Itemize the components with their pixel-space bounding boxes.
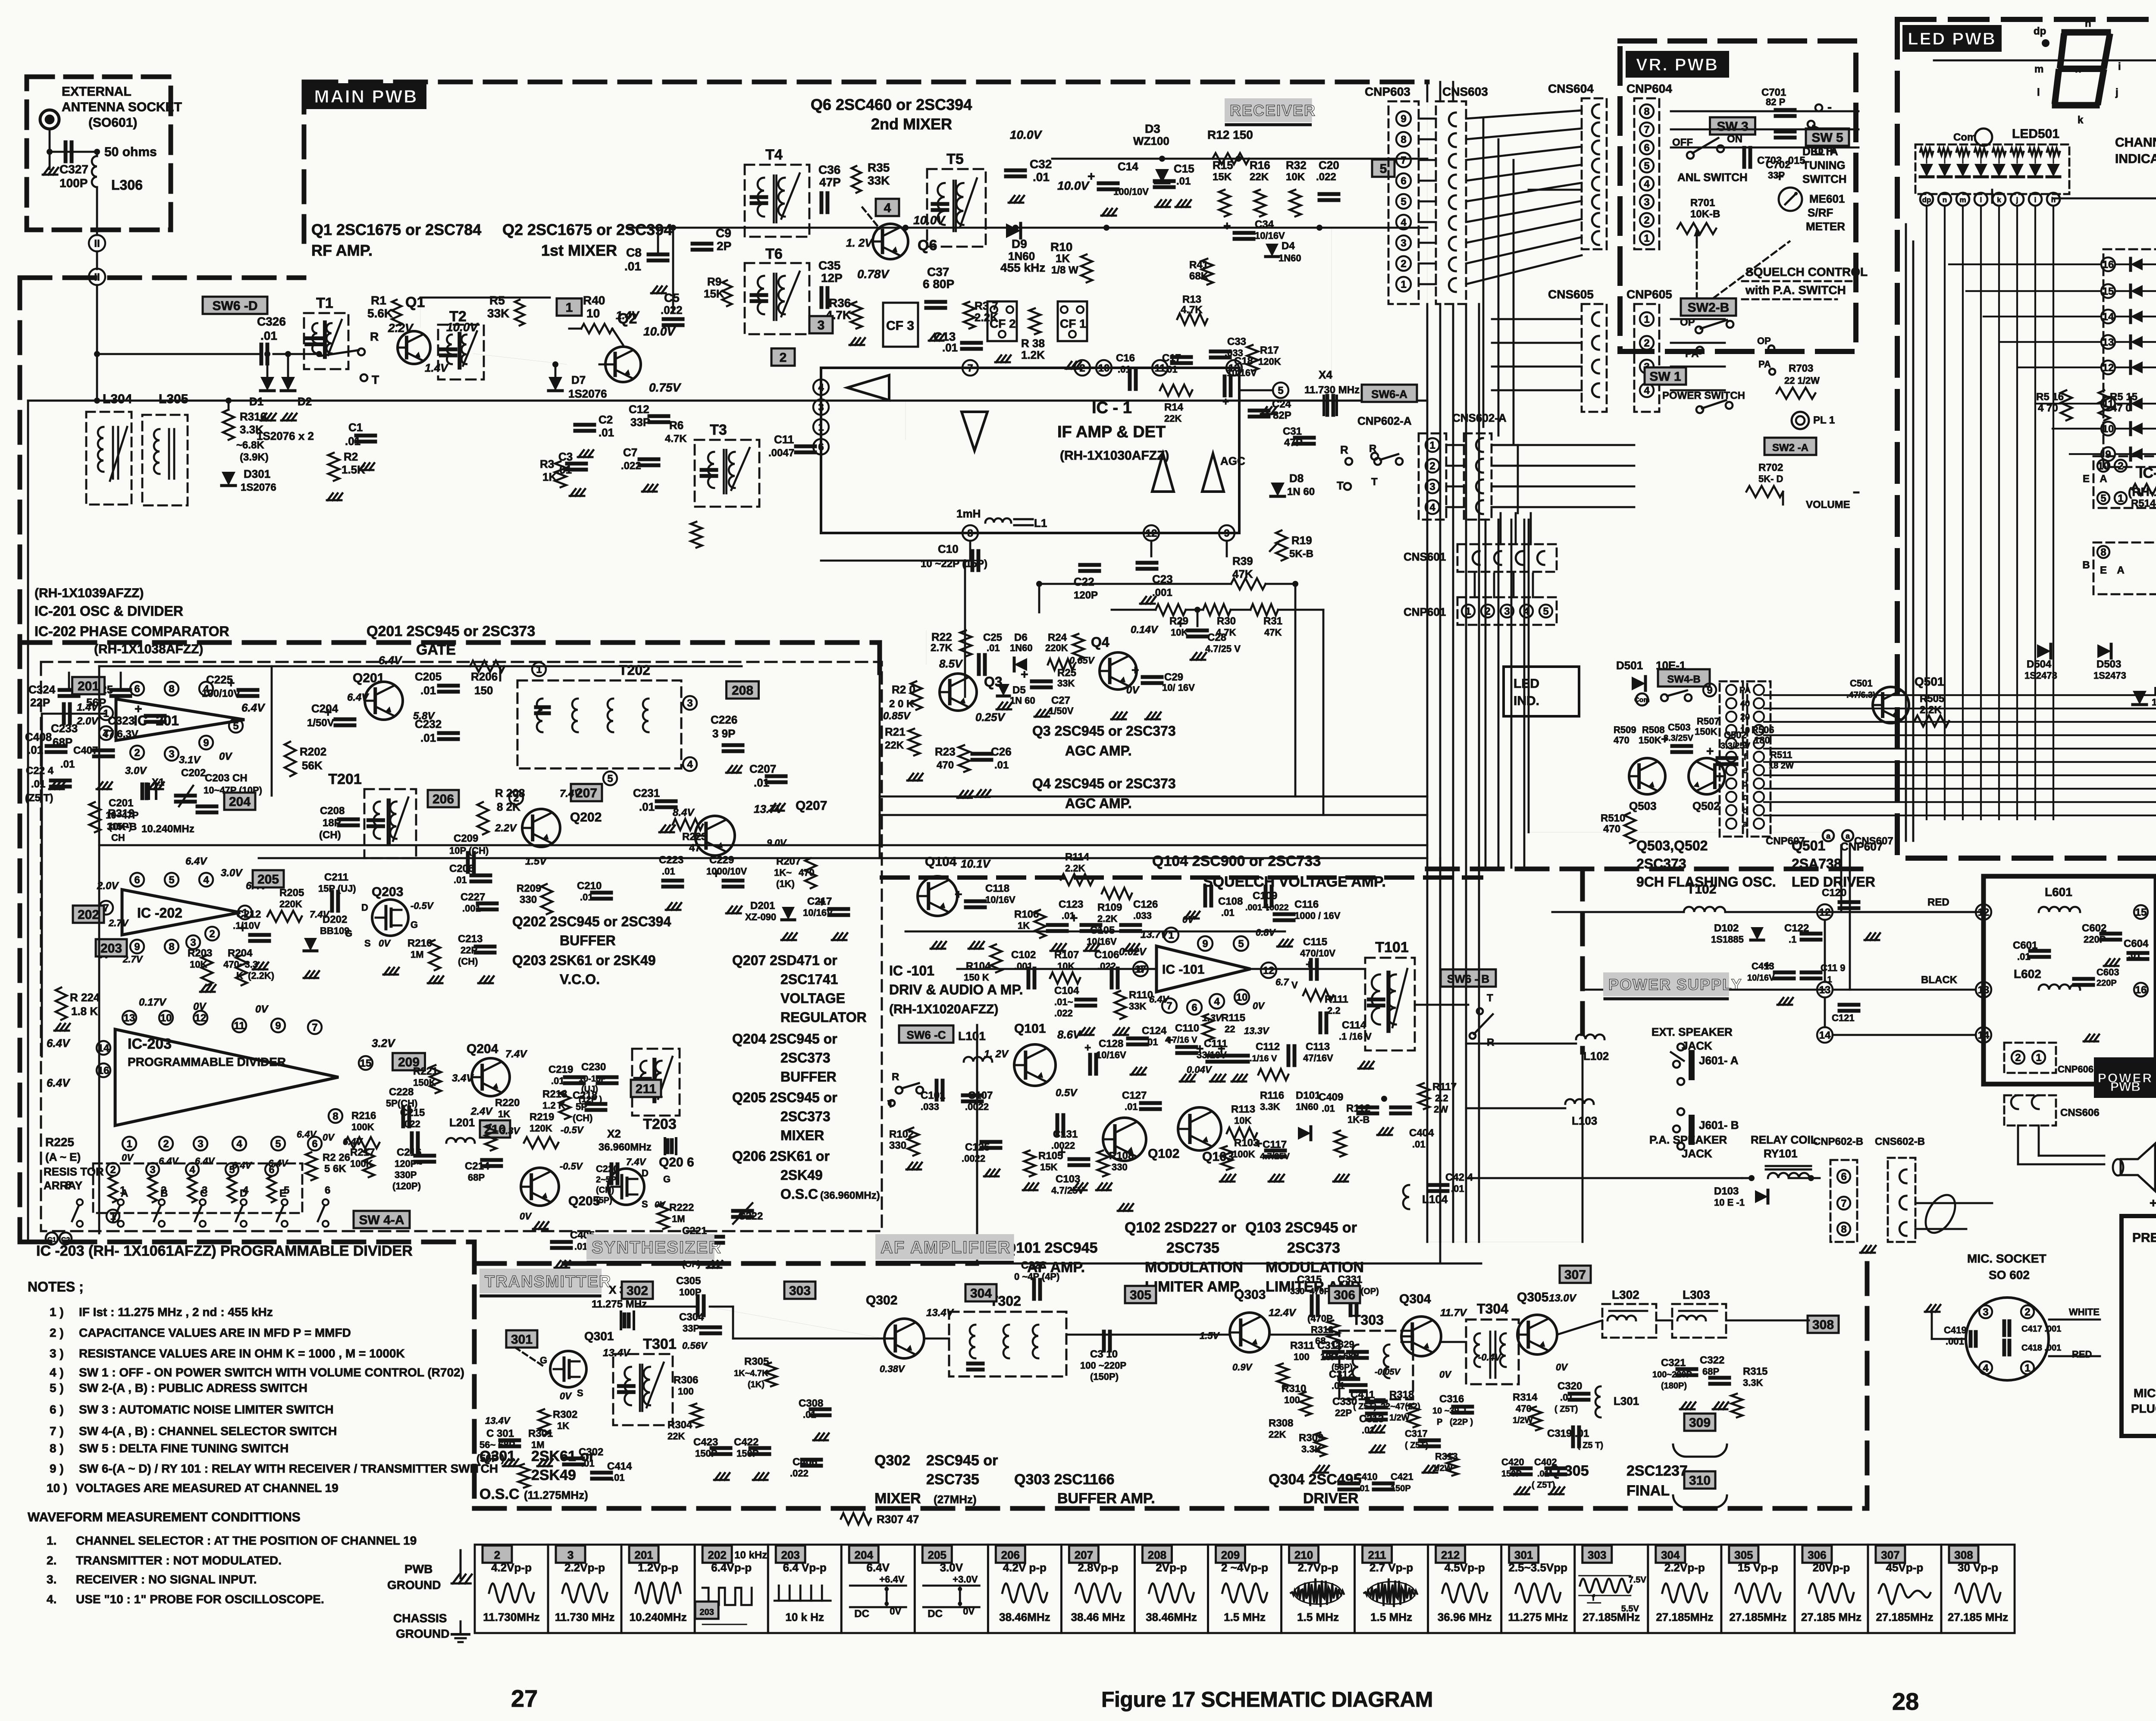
- svg-text:EXT. SPEAKER: EXT. SPEAKER: [1651, 1025, 1733, 1038]
- svg-text:1: 1: [2118, 493, 2123, 505]
- svg-text:2SC735: 2SC735: [926, 1471, 979, 1488]
- svg-text:RECEIVER : NO SIGNAL INPUT.: RECEIVER : NO SIGNAL INPUT.: [76, 1573, 257, 1586]
- svg-text:R510: R510: [1601, 812, 1625, 824]
- svg-text:+: +: [1661, 732, 1669, 746]
- svg-text:Q204 2SC945 or: Q204 2SC945 or: [732, 1031, 837, 1047]
- svg-text:1.5 MHz: 1.5 MHz: [1297, 1611, 1339, 1624]
- svg-text:Q6: Q6: [918, 237, 937, 254]
- svg-text:7: 7: [1644, 124, 1649, 136]
- svg-text:+: +: [1131, 663, 1139, 677]
- svg-text:1.4V: 1.4V: [77, 702, 99, 713]
- svg-text:2SC373: 2SC373: [780, 1109, 830, 1124]
- svg-text:6: 6: [134, 683, 140, 695]
- svg-text:C115: C115: [1303, 936, 1327, 948]
- svg-text:2.0V: 2.0V: [76, 715, 99, 727]
- svg-text:R219: R219: [530, 1111, 554, 1123]
- svg-text:C103: C103: [1056, 1173, 1080, 1185]
- svg-text:MIC. SOCKET: MIC. SOCKET: [1967, 1252, 2046, 1265]
- svg-text:7.4V: 7.4V: [505, 1048, 527, 1060]
- svg-text:L103: L103: [1572, 1114, 1597, 1127]
- svg-text:+: +: [818, 895, 826, 909]
- svg-text:V.C.O.: V.C.O.: [560, 972, 600, 987]
- svg-text:C12: C12: [629, 403, 649, 416]
- svg-text:9: 9: [203, 737, 209, 749]
- svg-text:CF 1: CF 1: [1060, 317, 1086, 330]
- svg-text:27.185 MHz: 27.185 MHz: [1801, 1611, 1861, 1624]
- svg-text:(22P ): (22P ): [1450, 1417, 1473, 1427]
- svg-text:120K: 120K: [530, 1123, 552, 1134]
- svg-text:.033: .033: [1133, 910, 1152, 921]
- svg-text:P.A. SPEAKER: P.A. SPEAKER: [1649, 1133, 1727, 1146]
- svg-text:P: P: [1437, 1417, 1442, 1427]
- svg-text:Q1: Q1: [405, 294, 425, 310]
- svg-text:0.5V: 0.5V: [1056, 1087, 1078, 1099]
- svg-text:10: 10: [2103, 423, 2114, 435]
- svg-text:d: d: [1742, 779, 1748, 789]
- svg-text:5K- D: 5K- D: [1758, 473, 1783, 484]
- svg-text:a: a: [1742, 819, 1748, 829]
- svg-text:(2.2K): (2.2K): [248, 970, 274, 981]
- svg-text:Q20 6: Q20 6: [659, 1155, 694, 1169]
- svg-text:0.85V: 0.85V: [883, 710, 911, 722]
- svg-text:1S1885: 1S1885: [1711, 934, 1744, 945]
- svg-text:38.46MHz: 38.46MHz: [1146, 1611, 1197, 1624]
- svg-text:CNP605: CNP605: [1626, 288, 1672, 301]
- svg-text:C11: C11: [774, 433, 794, 446]
- svg-text:Q201 2SC945 or 2SC373: Q201 2SC945 or 2SC373: [367, 623, 535, 639]
- svg-text:DRIVER: DRIVER: [1303, 1490, 1358, 1507]
- svg-text:IC-501: IC-501: [2139, 465, 2156, 481]
- svg-text:2: 2: [1401, 258, 1406, 270]
- svg-text:307: 307: [1564, 1268, 1586, 1282]
- svg-text:CNS602-B: CNS602-B: [1875, 1136, 1925, 1147]
- svg-text:Q202: Q202: [570, 810, 602, 824]
- svg-text:C110: C110: [1175, 1022, 1199, 1034]
- svg-text:(Z5 T): (Z5 T): [25, 792, 53, 804]
- svg-text:R202: R202: [300, 745, 326, 758]
- svg-text:(15P): (15P): [109, 821, 132, 832]
- svg-text:3.0V: 3.0V: [125, 765, 147, 777]
- svg-text:3.3K: 3.3K: [1260, 1101, 1280, 1112]
- svg-text:C305: C305: [676, 1275, 701, 1287]
- svg-text:.01: .01: [1221, 907, 1235, 918]
- svg-text:~6.8K: ~6.8K: [236, 439, 264, 451]
- svg-text:CNS605: CNS605: [1548, 288, 1594, 301]
- svg-text:C35: C35: [818, 259, 840, 272]
- svg-text:TRANSMITTER: TRANSMITTER: [485, 1273, 611, 1291]
- svg-text:R301: R301: [528, 1428, 553, 1439]
- svg-text:C14: C14: [1118, 160, 1138, 173]
- svg-text:D2: D2: [298, 395, 312, 408]
- svg-text:2.7V: 2.7V: [108, 918, 129, 928]
- svg-text:47K: 47K: [1232, 567, 1253, 580]
- svg-text:309: 309: [1689, 1416, 1711, 1430]
- svg-text:(36.960MHz): (36.960MHz): [820, 1190, 880, 1201]
- svg-text:15: 15: [360, 1058, 372, 1069]
- svg-text:SW2-B: SW2-B: [1688, 301, 1730, 315]
- svg-text:R209: R209: [517, 883, 541, 894]
- svg-text:IF AMP & DET: IF AMP & DET: [1057, 423, 1166, 441]
- svg-text:202: 202: [708, 1549, 726, 1561]
- svg-text:1S2076: 1S2076: [568, 387, 607, 400]
- svg-text:10 ): 10 ): [47, 1481, 67, 1495]
- svg-text:T6: T6: [765, 246, 783, 262]
- svg-text:6: 6: [818, 442, 824, 453]
- svg-text:SW6 -D: SW6 -D: [213, 299, 258, 313]
- svg-text:Q102: Q102: [1148, 1147, 1179, 1161]
- svg-text:R106: R106: [1014, 909, 1039, 920]
- svg-text:(5P): (5P): [596, 1196, 612, 1205]
- svg-text:305: 305: [1130, 1288, 1151, 1302]
- svg-text:+: +: [1070, 911, 1078, 925]
- svg-text:C327: C327: [60, 163, 88, 176]
- svg-text:O.S.C: O.S.C: [780, 1186, 818, 1202]
- svg-text:C211: C211: [324, 871, 348, 883]
- svg-text:5.6K: 5.6K: [367, 307, 393, 320]
- svg-text:330: 330: [1112, 1162, 1128, 1172]
- svg-text:4.5Vp-p: 4.5Vp-p: [1445, 1561, 1485, 1574]
- svg-text:C329: C329: [1332, 1339, 1354, 1350]
- svg-text:2P: 2P: [717, 239, 731, 253]
- svg-text:(56P): (56P): [1332, 1363, 1353, 1372]
- svg-text:7.4V: 7.4V: [560, 788, 582, 799]
- svg-text:1M: 1M: [672, 1213, 685, 1224]
- svg-text:Q104: Q104: [925, 855, 957, 869]
- svg-text:(180P): (180P): [1661, 1381, 1687, 1391]
- svg-text:4: 4: [243, 1185, 249, 1196]
- svg-text:C227: C227: [461, 891, 485, 903]
- svg-text:J601- A: J601- A: [1699, 1054, 1739, 1067]
- svg-text:T1: T1: [316, 295, 333, 311]
- svg-text:IC-203: IC-203: [128, 1036, 172, 1052]
- svg-text:T203: T203: [643, 1116, 677, 1132]
- svg-text:2: 2: [1644, 338, 1649, 349]
- svg-text:MODULATION: MODULATION: [1145, 1259, 1243, 1276]
- svg-text:30 Vp-p: 30 Vp-p: [1958, 1561, 1998, 1574]
- svg-text:12.4V: 12.4V: [1269, 1307, 1297, 1319]
- svg-text:L104: L104: [1422, 1193, 1448, 1206]
- svg-text:SW 5: SW 5: [1811, 131, 1843, 145]
- svg-text:IF Ist : 11.275 MHz , 2 nd :: IF Ist : 11.275 MHz , 2 nd : 455 kHz: [79, 1305, 273, 1319]
- svg-text:R116: R116: [1260, 1090, 1284, 1101]
- svg-text:150K: 150K: [1639, 735, 1661, 746]
- svg-text:with P.A. SWITCH: with P.A. SWITCH: [1745, 283, 1846, 297]
- svg-text:100/10V: 100/10V: [1113, 186, 1149, 197]
- svg-text:C127: C127: [1122, 1090, 1147, 1101]
- svg-text:.01: .01: [31, 778, 45, 790]
- svg-text:C233: C233: [51, 722, 78, 735]
- svg-text:1K: 1K: [1056, 252, 1070, 265]
- svg-text:D9: D9: [1012, 237, 1027, 251]
- svg-text:1. 2V: 1. 2V: [846, 236, 873, 249]
- svg-text:+: +: [712, 867, 720, 881]
- svg-text:R: R: [370, 330, 379, 343]
- svg-text:JACK: JACK: [1682, 1147, 1712, 1160]
- svg-text:L304: L304: [103, 392, 132, 406]
- svg-text:13: 13: [1228, 363, 1240, 374]
- svg-text:4: 4: [1429, 502, 1435, 514]
- svg-text:VOLTAGES ARE MEASURED AT CHAN: VOLTAGES ARE MEASURED AT CHANNEL 19: [76, 1481, 338, 1495]
- svg-text:R225: R225: [45, 1135, 74, 1149]
- svg-text:C326: C326: [257, 315, 286, 328]
- svg-text:470: 470: [1603, 823, 1620, 835]
- svg-text:0V: 0V: [379, 938, 391, 949]
- svg-text:ON: ON: [1727, 133, 1742, 145]
- svg-text:D4: D4: [1282, 240, 1295, 252]
- svg-text:R 38: R 38: [1021, 337, 1045, 350]
- svg-text:SW 4-A: SW 4-A: [359, 1213, 404, 1227]
- svg-text:1.5V: 1.5V: [1200, 1330, 1220, 1341]
- svg-text:1S2473: 1S2473: [2024, 670, 2057, 681]
- svg-text:33K: 33K: [1129, 1001, 1146, 1012]
- svg-text:k: k: [1997, 196, 2001, 204]
- svg-text:SWITCH: SWITCH: [1802, 172, 1847, 185]
- svg-text:10 k Hz: 10 k Hz: [785, 1611, 824, 1624]
- svg-text:dp: dp: [1922, 196, 1931, 204]
- svg-text:R23: R23: [935, 745, 956, 758]
- svg-text:D1: D1: [249, 395, 263, 408]
- svg-text:13.7V: 13.7V: [754, 803, 784, 815]
- svg-text:2.7Vp-p: 2.7Vp-p: [1298, 1561, 1338, 1574]
- svg-text:7.5V: 7.5V: [1629, 1575, 1647, 1585]
- svg-text:G: G: [663, 1174, 671, 1185]
- svg-text:3.4V: 3.4V: [452, 1072, 474, 1084]
- svg-text:SW 3: SW 3: [1717, 119, 1748, 134]
- svg-text:5: 5: [1401, 196, 1406, 208]
- svg-text:20: 20: [1740, 712, 1750, 722]
- svg-text:+: +: [1166, 1033, 1174, 1047]
- svg-text:1/50V: 1/50V: [1049, 705, 1074, 716]
- svg-text:C501: C501: [1850, 678, 1873, 689]
- svg-text:(12P ): (12P ): [579, 1095, 602, 1104]
- svg-text:+: +: [1776, 169, 1784, 184]
- svg-text:56K: 56K: [302, 759, 323, 772]
- svg-text:0.56V: 0.56V: [682, 1340, 708, 1351]
- svg-text:Q203: Q203: [372, 885, 403, 899]
- svg-text:10 kHz: 10 kHz: [734, 1549, 767, 1561]
- svg-text:C220: C220: [596, 1163, 619, 1174]
- svg-text:2SC1237: 2SC1237: [1626, 1463, 1688, 1479]
- svg-text:0V: 0V: [1439, 1369, 1452, 1380]
- svg-text:R511: R511: [1770, 749, 1792, 760]
- svg-text:22K: 22K: [1269, 1429, 1286, 1440]
- svg-text:R: R: [892, 1071, 899, 1083]
- svg-text:C34: C34: [1255, 219, 1274, 230]
- svg-text:6: 6: [269, 1164, 274, 1176]
- svg-text:T5: T5: [946, 151, 964, 167]
- svg-text:.01: .01: [1412, 1139, 1426, 1150]
- svg-text:(1K): (1K): [776, 878, 795, 889]
- svg-text:.01: .01: [599, 426, 614, 439]
- svg-text:2.7K: 2.7K: [931, 642, 953, 654]
- svg-text:6.4V: 6.4V: [379, 654, 403, 667]
- svg-text:SW 2-(A , B) : PUBLIC ADRESS: SW 2-(A , B) : PUBLIC ADRESS SWITCH: [79, 1381, 307, 1395]
- svg-text:R115: R115: [1221, 1012, 1245, 1024]
- svg-text:11.730 MHz: 11.730 MHz: [555, 1611, 615, 1624]
- svg-text:3: 3: [1401, 238, 1406, 249]
- svg-text:C210: C210: [577, 880, 602, 892]
- svg-text:+: +: [1177, 617, 1185, 631]
- svg-text:INDICATOR: INDICATOR: [2115, 152, 2156, 166]
- svg-text:10/16V: 10/16V: [1087, 936, 1117, 947]
- svg-text:2.2Vp-p: 2.2Vp-p: [564, 1561, 605, 1574]
- svg-text:208: 208: [1148, 1549, 1166, 1561]
- svg-text:CHASSIS: CHASSIS: [393, 1611, 447, 1625]
- svg-text:C31: C31: [1283, 426, 1302, 437]
- svg-text:IC - 1: IC - 1: [1092, 399, 1132, 417]
- svg-text:10.240MHz: 10.240MHz: [630, 1611, 687, 1624]
- svg-text:2SC373: 2SC373: [1287, 1240, 1340, 1256]
- svg-text:(SO601): (SO601): [88, 116, 137, 130]
- svg-text:209: 209: [1221, 1549, 1240, 1561]
- svg-text:m: m: [2034, 63, 2043, 75]
- svg-text:R5: R5: [489, 294, 505, 307]
- svg-text:2.4V: 2.4V: [470, 1106, 493, 1117]
- svg-text:211: 211: [636, 1082, 656, 1096]
- svg-text:0.17V: 0.17V: [139, 997, 167, 1008]
- svg-text:47P: 47P: [819, 176, 841, 189]
- svg-text:1: 1: [120, 1185, 125, 1196]
- svg-text:6: 6: [1644, 142, 1649, 154]
- svg-text:100 ~220P: 100 ~220P: [1080, 1360, 1126, 1371]
- svg-text:C503: C503: [1668, 722, 1691, 733]
- svg-text:33K: 33K: [1057, 678, 1075, 689]
- svg-text:9: 9: [1401, 113, 1406, 125]
- svg-text:E: E: [2100, 564, 2107, 576]
- svg-text:12: 12: [1819, 907, 1831, 918]
- svg-text:C206: C206: [449, 863, 474, 875]
- svg-text:Q304 2SC495: Q304 2SC495: [1269, 1471, 1362, 1488]
- svg-text:-0.5V: -0.5V: [411, 900, 434, 911]
- svg-text:.01: .01: [662, 866, 675, 877]
- svg-text:-0.05V: -0.05V: [1375, 1367, 1401, 1377]
- svg-text:LIMITER AMP.: LIMITER AMP.: [1145, 1279, 1242, 1295]
- svg-text:b: b: [1742, 806, 1748, 815]
- svg-text:1: 1: [2036, 1052, 2041, 1064]
- svg-text:SW2 -A: SW2 -A: [1772, 442, 1808, 454]
- svg-text:Q501: Q501: [1915, 675, 1944, 688]
- svg-text:47K: 47K: [1264, 627, 1282, 638]
- svg-text:R21: R21: [885, 725, 906, 738]
- svg-text:Q207 2SD471 or: Q207 2SD471 or: [732, 953, 837, 968]
- svg-text:1K~: 1K~: [774, 867, 792, 878]
- svg-text:C121: C121: [1832, 1013, 1855, 1023]
- svg-text:C128: C128: [1099, 1038, 1123, 1050]
- svg-text:6 ): 6 ): [50, 1403, 64, 1416]
- svg-text:308: 308: [1812, 1318, 1834, 1332]
- svg-text:C24: C24: [1272, 398, 1291, 410]
- svg-text:MIC.: MIC.: [2134, 1386, 2156, 1400]
- svg-text:0.02V: 0.02V: [1119, 946, 1147, 958]
- svg-text:C201: C201: [109, 797, 133, 809]
- svg-text:1S2076: 1S2076: [241, 482, 276, 493]
- svg-text:8: 8: [1841, 1224, 1846, 1235]
- svg-text:R2: R2: [344, 450, 358, 463]
- svg-text:Q104 2SC900 or 2SC733: Q104 2SC900 or 2SC733: [1152, 853, 1321, 869]
- svg-text:D6: D6: [1014, 632, 1028, 643]
- svg-text:.01: .01: [942, 341, 958, 354]
- svg-text:4: 4: [1401, 217, 1407, 229]
- svg-text:203: 203: [699, 1608, 714, 1617]
- svg-text:L201: L201: [449, 1116, 475, 1129]
- svg-text:6: 6: [1191, 1002, 1197, 1014]
- svg-text:T: T: [1337, 479, 1344, 492]
- svg-text:305: 305: [1734, 1549, 1753, 1561]
- svg-text:6.4V: 6.4V: [347, 692, 369, 703]
- svg-text:D7: D7: [571, 373, 586, 386]
- svg-text:11: 11: [1154, 363, 1165, 374]
- svg-text:2: 2: [780, 351, 787, 365]
- svg-text:R316: R316: [240, 410, 266, 423]
- svg-text:(CH): (CH): [319, 829, 341, 841]
- svg-text:0V: 0V: [193, 1001, 207, 1013]
- svg-text:(UJ): (UJ): [581, 1085, 598, 1094]
- svg-text:11.730MHz: 11.730MHz: [483, 1611, 540, 1624]
- svg-text:15K: 15K: [1040, 1162, 1057, 1172]
- svg-text:1.: 1.: [47, 1534, 56, 1547]
- svg-text:33P: 33P: [683, 1323, 699, 1334]
- svg-text:11: 11: [234, 1020, 244, 1032]
- svg-text:2.5~3.5Vpp: 2.5~3.5Vpp: [1508, 1561, 1567, 1574]
- svg-text:1000 / 16V: 1000 / 16V: [1294, 910, 1341, 921]
- svg-text:C417 .001: C417 .001: [2021, 1324, 2061, 1334]
- svg-text:+: +: [1222, 395, 1229, 408]
- svg-text:0.75V: 0.75V: [649, 381, 681, 394]
- svg-text:L601: L601: [2045, 885, 2072, 899]
- svg-text:i: i: [2118, 61, 2121, 72]
- svg-text:16: 16: [2103, 259, 2114, 271]
- svg-text:2: 2: [134, 747, 140, 759]
- svg-text:C317: C317: [1405, 1428, 1428, 1439]
- svg-text:2.2K: 2.2K: [1097, 913, 1118, 924]
- svg-text:150 K: 150 K: [964, 972, 989, 983]
- svg-text:1K-B: 1K-B: [1347, 1114, 1369, 1125]
- svg-text:C10: C10: [938, 542, 959, 555]
- svg-text:9: 9: [1224, 528, 1229, 539]
- svg-text:2.8Vp-p: 2.8Vp-p: [1078, 1561, 1118, 1574]
- svg-text:C9: C9: [716, 226, 731, 240]
- svg-text:1/8 W: 1/8 W: [1051, 264, 1078, 276]
- svg-text:R14: R14: [1164, 401, 1184, 413]
- svg-text:1N 60: 1N 60: [1287, 486, 1315, 498]
- svg-text:220P: 220P: [2096, 978, 2117, 988]
- svg-text:6.4V: 6.4V: [241, 701, 266, 714]
- svg-text:FINAL: FINAL: [1626, 1483, 1670, 1499]
- svg-text:C315: C315: [1297, 1274, 1322, 1285]
- svg-text:0V: 0V: [520, 1211, 532, 1222]
- svg-text:10.0V: 10.0V: [1057, 179, 1090, 192]
- svg-text:.01: .01: [639, 800, 655, 813]
- svg-text:k: k: [2078, 114, 2084, 126]
- svg-text:SW 1: SW 1: [1649, 370, 1681, 384]
- svg-text:n: n: [2075, 63, 2081, 75]
- svg-text:C205: C205: [415, 670, 442, 683]
- svg-text:470: 470: [1614, 735, 1630, 746]
- svg-text:303: 303: [789, 1284, 811, 1298]
- svg-text:.01: .01: [260, 329, 277, 342]
- svg-text:C113: C113: [1306, 1041, 1330, 1053]
- svg-text:D103: D103: [1714, 1185, 1739, 1197]
- svg-text:SW 3 : AUTOMATIC NOISE LIMIT: SW 3 : AUTOMATIC NOISE LIMITER SWITCH: [79, 1403, 334, 1416]
- svg-text:.01: .01: [1176, 176, 1191, 187]
- svg-text:C212: C212: [236, 909, 261, 920]
- svg-text:2SC945 or: 2SC945 or: [926, 1452, 998, 1469]
- svg-text:REGULATOR: REGULATOR: [780, 1009, 867, 1025]
- svg-text:C207: C207: [749, 762, 776, 775]
- svg-text:CNP602-B: CNP602-B: [1813, 1136, 1863, 1147]
- svg-text:6.4V: 6.4V: [297, 1129, 317, 1140]
- svg-text:4: 4: [818, 382, 824, 394]
